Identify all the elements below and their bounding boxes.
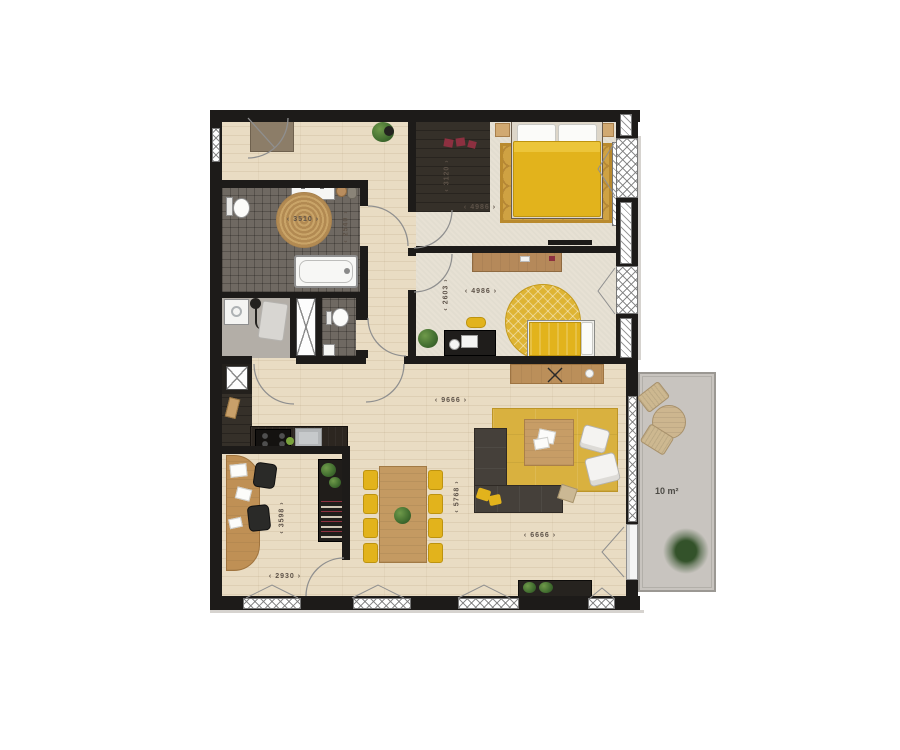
wall-hall-living [296,356,366,364]
wall-tv [548,240,592,245]
wall-bedroom2-bottom [416,356,638,364]
window-opening-icon [590,588,614,598]
bed-single-duvet [529,322,581,356]
toilet [226,197,233,216]
dining-chair [428,518,443,538]
kitchen-sink [295,428,322,448]
bedroom2-plant [418,329,438,348]
dim-bedroom2-width: 4986 [459,288,503,295]
washing-machine-door [231,306,242,317]
dim-bedroom2-depth: 2603 [443,273,450,317]
fan-icon [546,366,564,384]
toilet-bowl [233,198,250,218]
sideboard [472,252,562,272]
decor-bowl [585,369,594,378]
wall-bathroom-right [360,246,368,298]
wall-hall-living [216,356,252,364]
balcony-plant [663,528,709,574]
dining-chair [428,543,443,563]
wall-closet-right [316,298,322,358]
window-opening-icon [458,585,510,598]
dining-chair [363,494,378,514]
window-sill [638,136,641,360]
door-swing-icon [254,364,294,404]
bottom-window [458,598,519,609]
toilet2-sink [323,344,335,356]
planter-plant [523,582,536,593]
pillow [581,322,593,355]
dim-bathroom-width: 3510 [281,216,325,223]
window-opening-icon [598,268,615,314]
nightstand [495,123,510,137]
wall-toilet-right [356,298,368,320]
dim-bedroom1-depth: 3120 [444,154,451,198]
dining-chair [428,470,443,490]
balcony-door [626,524,638,580]
door-swing-icon [368,318,406,356]
bookshelf-plant [321,463,336,477]
door-swing-icon [248,118,288,158]
wall-insulation [620,114,632,136]
wall-bathroom-top [216,180,368,188]
window-sill [210,610,644,613]
bottom-window [243,598,301,609]
window-opening-icon [598,142,615,196]
paper [229,463,247,478]
dim-living-width-lower: 6666 [518,532,562,539]
door-swing-icon [366,364,404,402]
door-swing-icon [368,206,408,246]
entry-sidelight-window [212,128,220,162]
entry-plant-pot [384,126,394,136]
toilet2-bowl [332,308,349,327]
dim-office-width: 2930 [263,573,307,580]
laptop [461,335,478,348]
planter-plant [539,582,553,593]
window-opening-icon [602,527,624,577]
table-centerpiece-plant [394,507,411,524]
balcony-area-label: 10 m² [655,486,679,496]
closet-wardrobe [296,298,316,356]
bottom-window [353,598,411,609]
door-swing-icon [306,558,344,596]
bedroom2-window [616,266,638,314]
dining-chair [363,543,378,563]
bedroom1-window [616,138,638,198]
wall-bedrooms-left [408,290,416,360]
dining-chair [363,470,378,490]
shelf-item [443,138,453,147]
dining-chair [363,518,378,538]
sideboard-item [520,256,530,262]
floor-plan: 3510 2540 4986 3120 4986 2603 9666 5768 … [0,0,900,750]
bottom-window [588,598,615,609]
door-swing-icon [414,210,452,248]
dim-bedroom1-width: 4986 [458,204,502,211]
dim-living-width-upper: 9666 [429,397,473,404]
desk-chair [466,317,486,328]
wall-office-top [216,446,350,454]
kitchen-herb [286,437,294,445]
bookshelf-plant [329,477,341,488]
shaft-vent-icon [226,366,248,390]
dim-living-depth: 5768 [454,475,461,519]
dim-office-depth: 3598 [279,496,286,540]
shelf-item [455,137,465,146]
bathtub-drain [344,268,350,274]
wall-insulation [620,202,632,264]
ironing-board [257,300,288,341]
wall-bedrooms-left [408,110,416,212]
wall-office-right [342,454,350,560]
desk-lamp [449,339,460,350]
office-chair [247,504,272,532]
wall-bathroom-right [360,180,368,206]
wall-utility-right [290,298,296,358]
window-opening-icon [246,585,298,598]
books [321,500,342,538]
dining-chair [428,494,443,514]
window-opening-icon [352,585,404,598]
bedroom1-closet-floor [416,122,490,212]
office-chair [252,462,277,490]
sideboard-plant [549,256,555,261]
dim-bathroom-depth: 2540 [343,205,350,249]
living-window [628,396,637,522]
bed-duvet [513,141,601,217]
wall-insulation [620,318,632,358]
